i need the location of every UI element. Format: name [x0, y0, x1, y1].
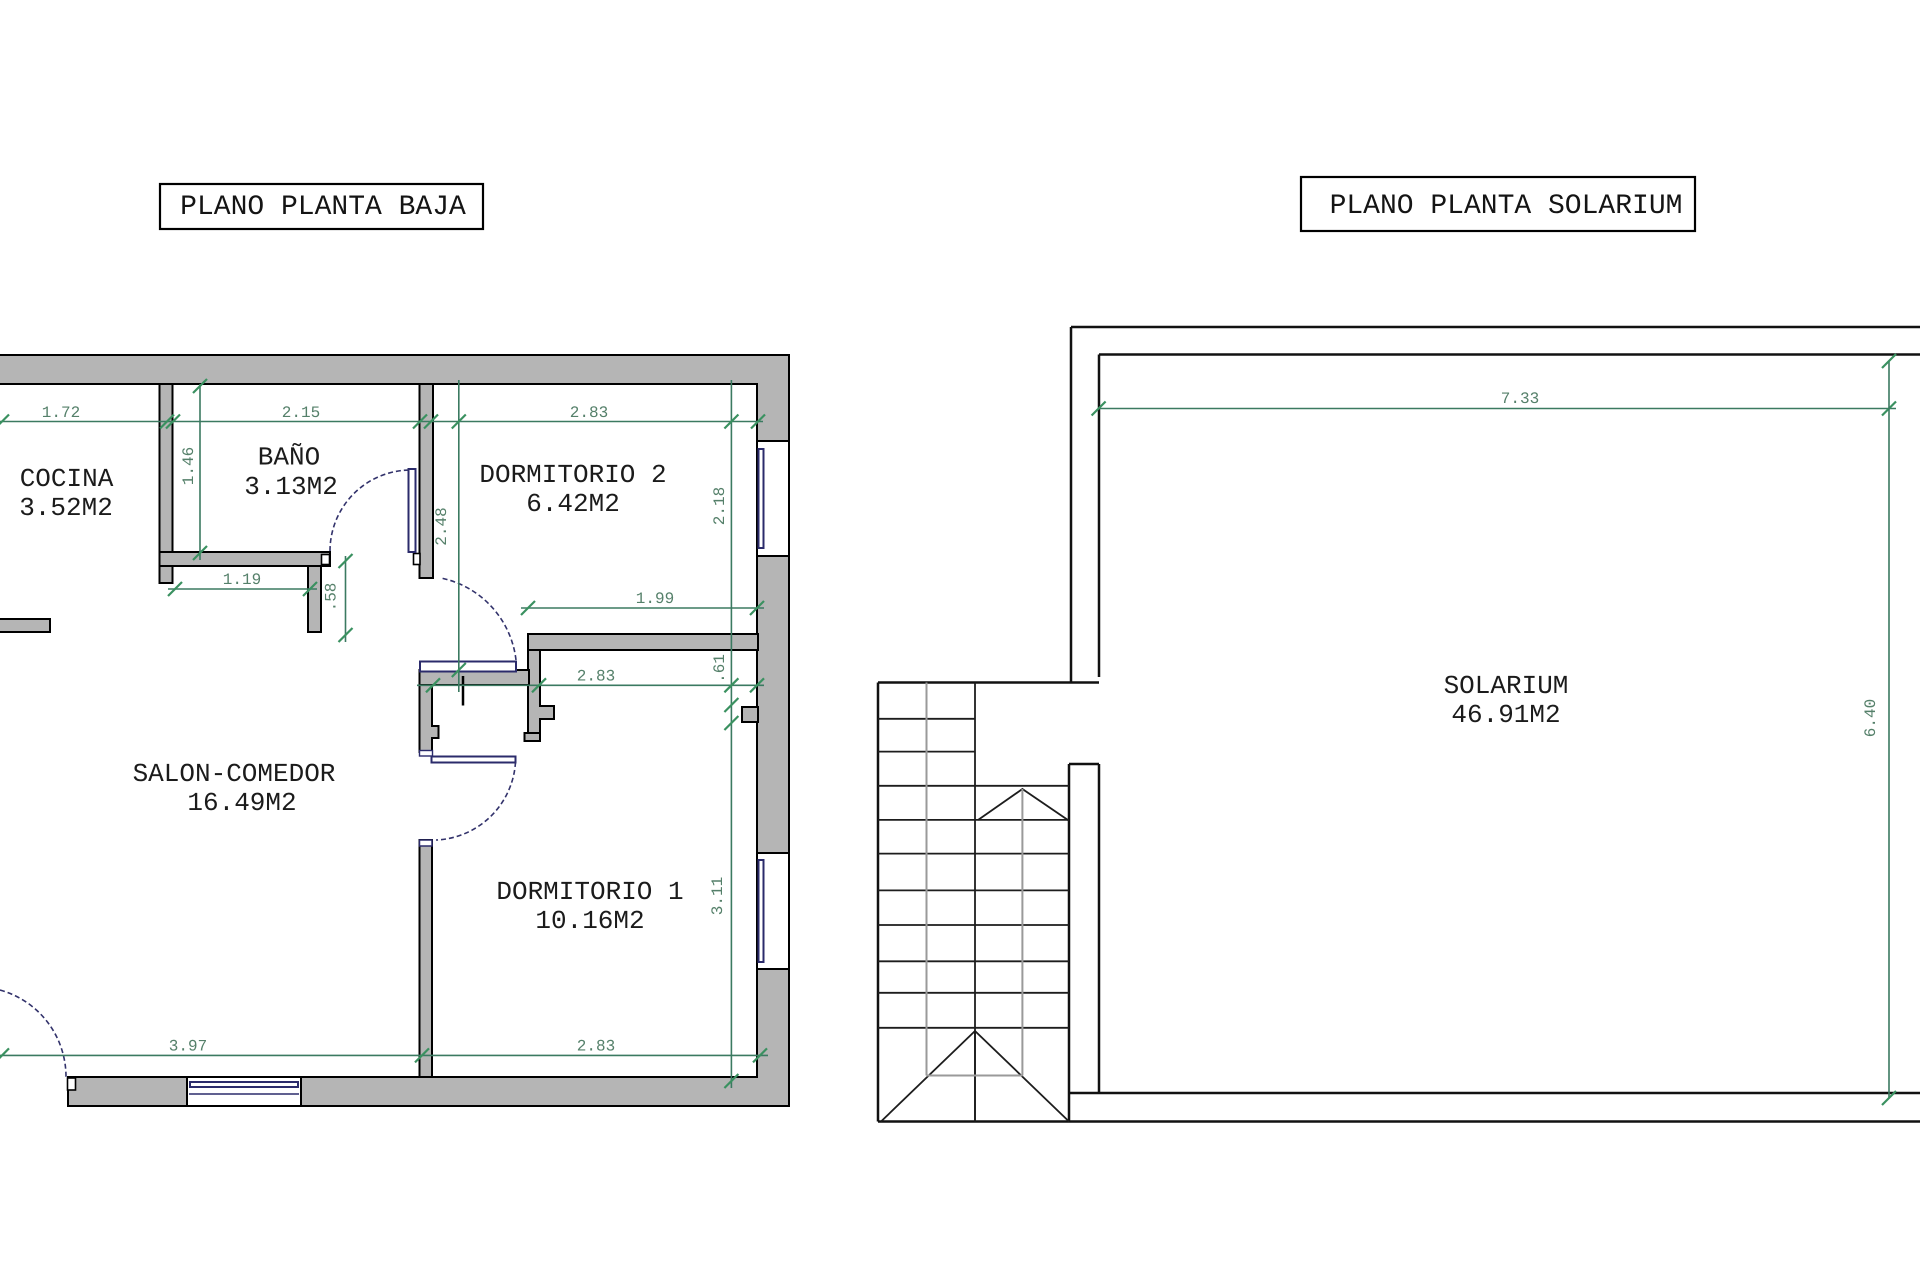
svg-text:16.49M2: 16.49M2: [187, 788, 296, 818]
svg-text:.61: .61: [711, 654, 729, 683]
svg-text:1.19: 1.19: [223, 571, 261, 589]
svg-text:1.99: 1.99: [636, 590, 674, 608]
svg-text:DORMITORIO 1: DORMITORIO 1: [496, 877, 683, 907]
svg-text:2.48: 2.48: [433, 507, 451, 545]
svg-text:2.18: 2.18: [711, 487, 729, 525]
svg-text:.58: .58: [323, 583, 341, 612]
svg-text:1.72: 1.72: [42, 404, 80, 422]
svg-text:3.13M2: 3.13M2: [244, 472, 338, 502]
svg-text:10.16M2: 10.16M2: [535, 906, 644, 936]
svg-text:2.83: 2.83: [570, 404, 608, 422]
svg-text:3.11: 3.11: [709, 877, 727, 915]
svg-text:6.40: 6.40: [1862, 699, 1880, 737]
svg-text:BAÑO: BAÑO: [258, 443, 320, 473]
svg-text:2.83: 2.83: [577, 667, 615, 685]
svg-text:3.52M2: 3.52M2: [19, 493, 113, 523]
svg-text:7.33: 7.33: [1501, 390, 1539, 408]
svg-text:SALON-COMEDOR: SALON-COMEDOR: [133, 759, 336, 789]
svg-text:2.15: 2.15: [282, 404, 320, 422]
svg-text:PLANO PLANTA BAJA: PLANO PLANTA BAJA: [180, 192, 466, 223]
svg-text:6.42M2: 6.42M2: [526, 489, 620, 519]
svg-text:2.83: 2.83: [577, 1037, 615, 1055]
svg-text:SOLARIUM: SOLARIUM: [1444, 671, 1569, 701]
svg-text:3.97: 3.97: [169, 1037, 207, 1055]
svg-text:COCINA: COCINA: [20, 464, 114, 494]
svg-text:1.46: 1.46: [180, 447, 198, 485]
svg-text:PLANO PLANTA SOLARIUM: PLANO PLANTA SOLARIUM: [1330, 191, 1683, 222]
svg-text:DORMITORIO 2: DORMITORIO 2: [479, 460, 666, 490]
svg-text:46.91M2: 46.91M2: [1451, 700, 1560, 730]
